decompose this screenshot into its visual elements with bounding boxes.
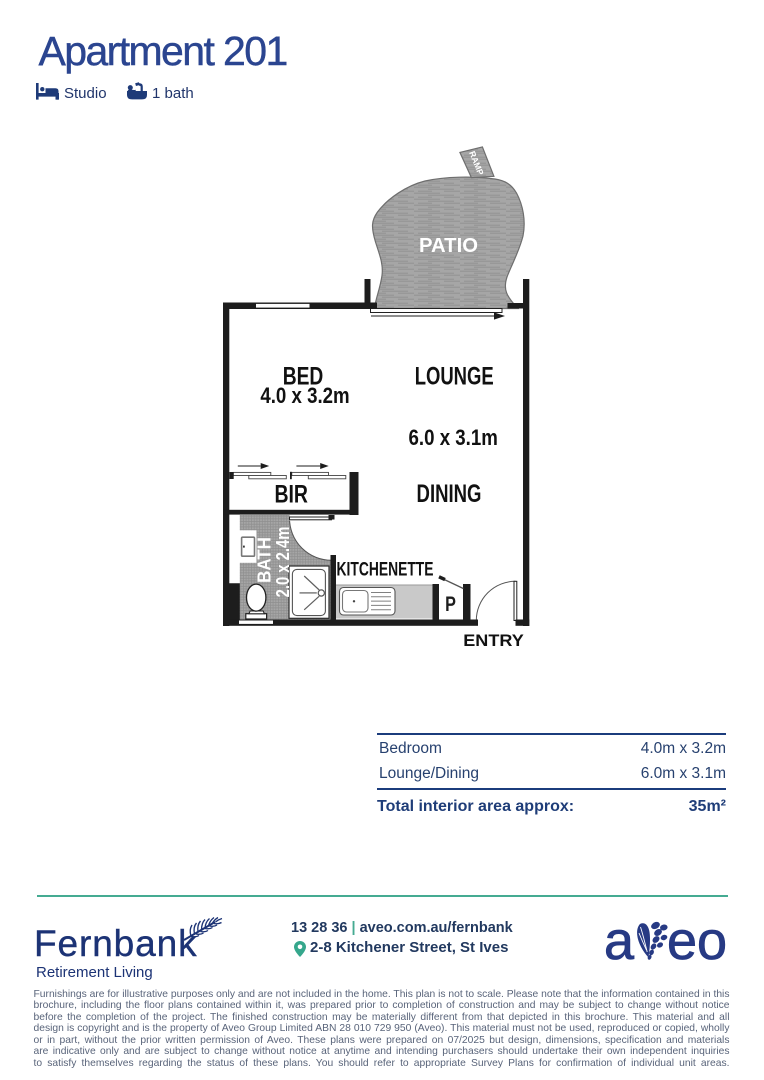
svg-text:BATH: BATH bbox=[254, 537, 274, 583]
svg-text:LOUNGE: LOUNGE bbox=[415, 363, 494, 391]
svg-text:PATIO: PATIO bbox=[419, 235, 478, 257]
svg-text:P: P bbox=[445, 593, 456, 616]
svg-text:6.0 x 3.1m: 6.0 x 3.1m bbox=[409, 425, 498, 450]
svg-text:4.0 x 3.2m: 4.0 x 3.2m bbox=[260, 383, 349, 408]
svg-text:BIR: BIR bbox=[274, 481, 308, 509]
svg-text:DINING: DINING bbox=[417, 480, 482, 508]
svg-text:ENTRY: ENTRY bbox=[463, 632, 524, 650]
svg-text:2.0 x 2.4m: 2.0 x 2.4m bbox=[273, 527, 293, 598]
svg-text:KITCHENETTE: KITCHENETTE bbox=[337, 559, 434, 581]
